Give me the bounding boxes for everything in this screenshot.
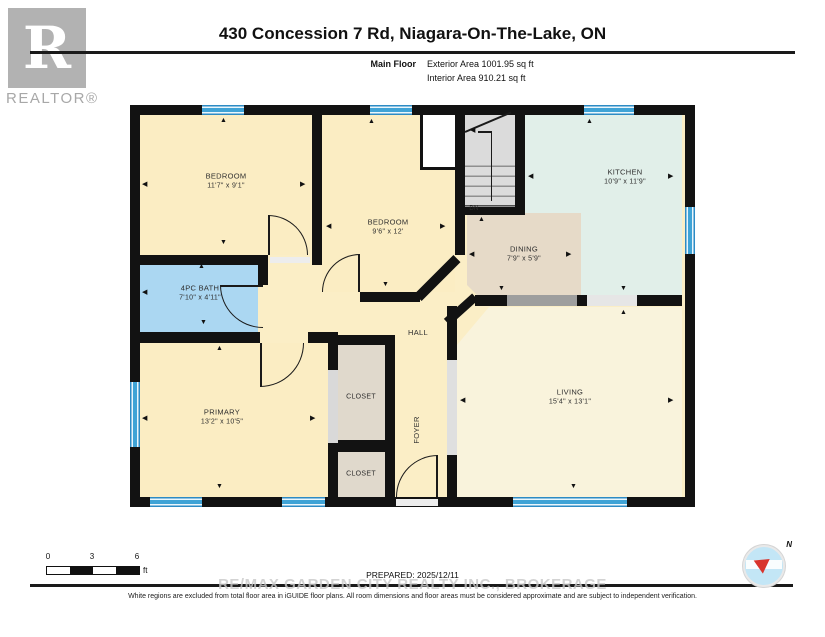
scale-tick-6: 6 (135, 552, 139, 561)
window-kitchen-right (685, 205, 695, 256)
window-living-bottom (511, 497, 629, 507)
measure-arrow-icon: ▶ (566, 251, 571, 258)
room-name: DINING (507, 245, 541, 255)
measure-arrow-icon: ▲ (586, 118, 593, 125)
label-kitchen: KITCHEN 10'9" x 11'9" (604, 168, 646, 187)
measure-arrow-icon: ▶ (668, 173, 673, 180)
room-name: LIVING (549, 388, 591, 398)
label-bedroom1: BEDROOM 11'7" x 9'1" (206, 172, 247, 191)
door-arc-front (396, 455, 438, 497)
stairs-direction-arrow-icon: ◀ (470, 127, 475, 134)
measure-arrow-icon: ▲ (620, 309, 627, 316)
wall-bath-right (258, 255, 268, 285)
stairs-path-line-v (491, 131, 493, 201)
room-dims: 7'10" x 4'11" (179, 293, 221, 302)
label-living: LIVING 15'4" x 13'1" (549, 388, 591, 407)
threshold-dining-living (507, 295, 577, 306)
wall-closet-right (385, 335, 395, 497)
compass-north-label: N (786, 540, 792, 549)
measure-arrow-icon: ▼ (570, 483, 577, 490)
room-dims: 11'7" x 9'1" (206, 181, 247, 190)
measure-arrow-icon: ◀ (469, 251, 474, 258)
measure-arrow-icon: ◀ (142, 415, 147, 422)
disclaimer-text: White regions are excluded from total fl… (0, 593, 825, 600)
window-primary-left (130, 380, 140, 449)
label-closet2: CLOSET (346, 469, 376, 478)
wall-stairs-kitchen (515, 105, 525, 215)
room-dims: 15'4" x 13'1" (549, 397, 591, 406)
label-stairs-dn: DN (469, 206, 478, 214)
wall-outer-right (685, 105, 695, 507)
threshold-kitchen-living (587, 295, 637, 306)
window-bedroom1-top (200, 105, 246, 115)
measure-arrow-icon: ▼ (620, 285, 627, 292)
label-dining: DINING 7'9" x 5'9" (507, 245, 541, 264)
measure-arrow-icon: ▼ (220, 239, 227, 246)
measure-arrow-icon: ▶ (310, 415, 315, 422)
measure-arrow-icon: ▶ (668, 397, 673, 404)
measure-arrow-icon: ◀ (142, 289, 147, 296)
realtor-logo-caption: REALTOR® (6, 90, 116, 107)
threshold-closet1-slider (328, 370, 338, 443)
measure-arrow-icon: ▼ (216, 483, 223, 490)
room-dims: 7'9" x 5'9" (507, 254, 541, 263)
room-name: BEDROOM (206, 172, 247, 182)
label-bedroom2: BEDROOM 9'6" x 12' (368, 218, 409, 237)
window-primary-bottom-1 (148, 497, 204, 507)
wall-bed2-bottom (360, 292, 420, 302)
scale-tick-0: 0 (46, 552, 50, 561)
measure-arrow-icon: ▼ (382, 281, 389, 288)
interior-area: Interior Area 910.21 sq ft (427, 73, 526, 83)
wall-bed1-bed2 (312, 105, 322, 265)
measure-arrow-icon: ◀ (326, 223, 331, 230)
measure-arrow-icon: ▲ (478, 216, 485, 223)
room-name: 4PC BATH (179, 284, 221, 294)
scale-tick-3: 3 (90, 552, 94, 561)
realtor-logo: R (8, 8, 86, 88)
label-hall: HALL (408, 328, 428, 338)
exterior-area: Exterior Area 1001.95 sq ft (427, 59, 534, 69)
label-primary: PRIMARY 13'2" x 10'5" (201, 408, 243, 427)
measure-arrow-icon: ▲ (216, 345, 223, 352)
measure-arrow-icon: ◀ (528, 173, 533, 180)
room-name: KITCHEN (604, 168, 646, 178)
measure-arrow-icon: ▼ (498, 285, 505, 292)
brokerage-watermark: RE/MAX GARDEN CITY REALTY INC., BROKERAG… (0, 576, 825, 593)
room-name: PRIMARY (201, 408, 243, 418)
wall-bath-bottom-a (130, 332, 260, 343)
window-bedroom2-top (368, 105, 414, 115)
measure-arrow-icon: ◀ (460, 397, 465, 404)
wall-bed2-stairs (455, 105, 465, 255)
measure-arrow-icon: ▶ (440, 223, 445, 230)
threshold-bed1-door (270, 257, 310, 263)
threshold-living-left (447, 360, 457, 455)
title-divider (30, 51, 795, 54)
measure-arrow-icon: ▼ (200, 319, 207, 326)
threshold-front-door (396, 499, 438, 506)
measure-arrow-icon: ◀ (142, 181, 147, 188)
label-bath: 4PC BATH 7'10" x 4'11" (179, 284, 221, 303)
wall-closet-mid (338, 440, 385, 452)
floor-label: Main Floor (330, 59, 416, 69)
floor-plan: ◀ BEDROOM 11'7" x 9'1" BED (130, 105, 695, 507)
room-dims: 10'9" x 11'9" (604, 177, 646, 186)
room-dims: 9'6" x 12' (368, 227, 409, 236)
measure-arrow-icon: ▶ (300, 181, 305, 188)
window-primary-bottom-2 (280, 497, 327, 507)
room-name: BEDROOM (368, 218, 409, 228)
label-foyer: FOYER (412, 416, 422, 443)
room-dims: 13'2" x 10'5" (201, 417, 243, 426)
label-closet1: CLOSET (346, 392, 376, 401)
window-kitchen-top (582, 105, 636, 115)
excluded-area-notch (420, 115, 455, 170)
page-title: 430 Concession 7 Rd, Niagara-On-The-Lake… (0, 24, 825, 44)
measure-arrow-icon: ▲ (368, 118, 375, 125)
measure-arrow-icon: ▲ (198, 263, 205, 270)
measure-arrow-icon: ▲ (220, 117, 227, 124)
